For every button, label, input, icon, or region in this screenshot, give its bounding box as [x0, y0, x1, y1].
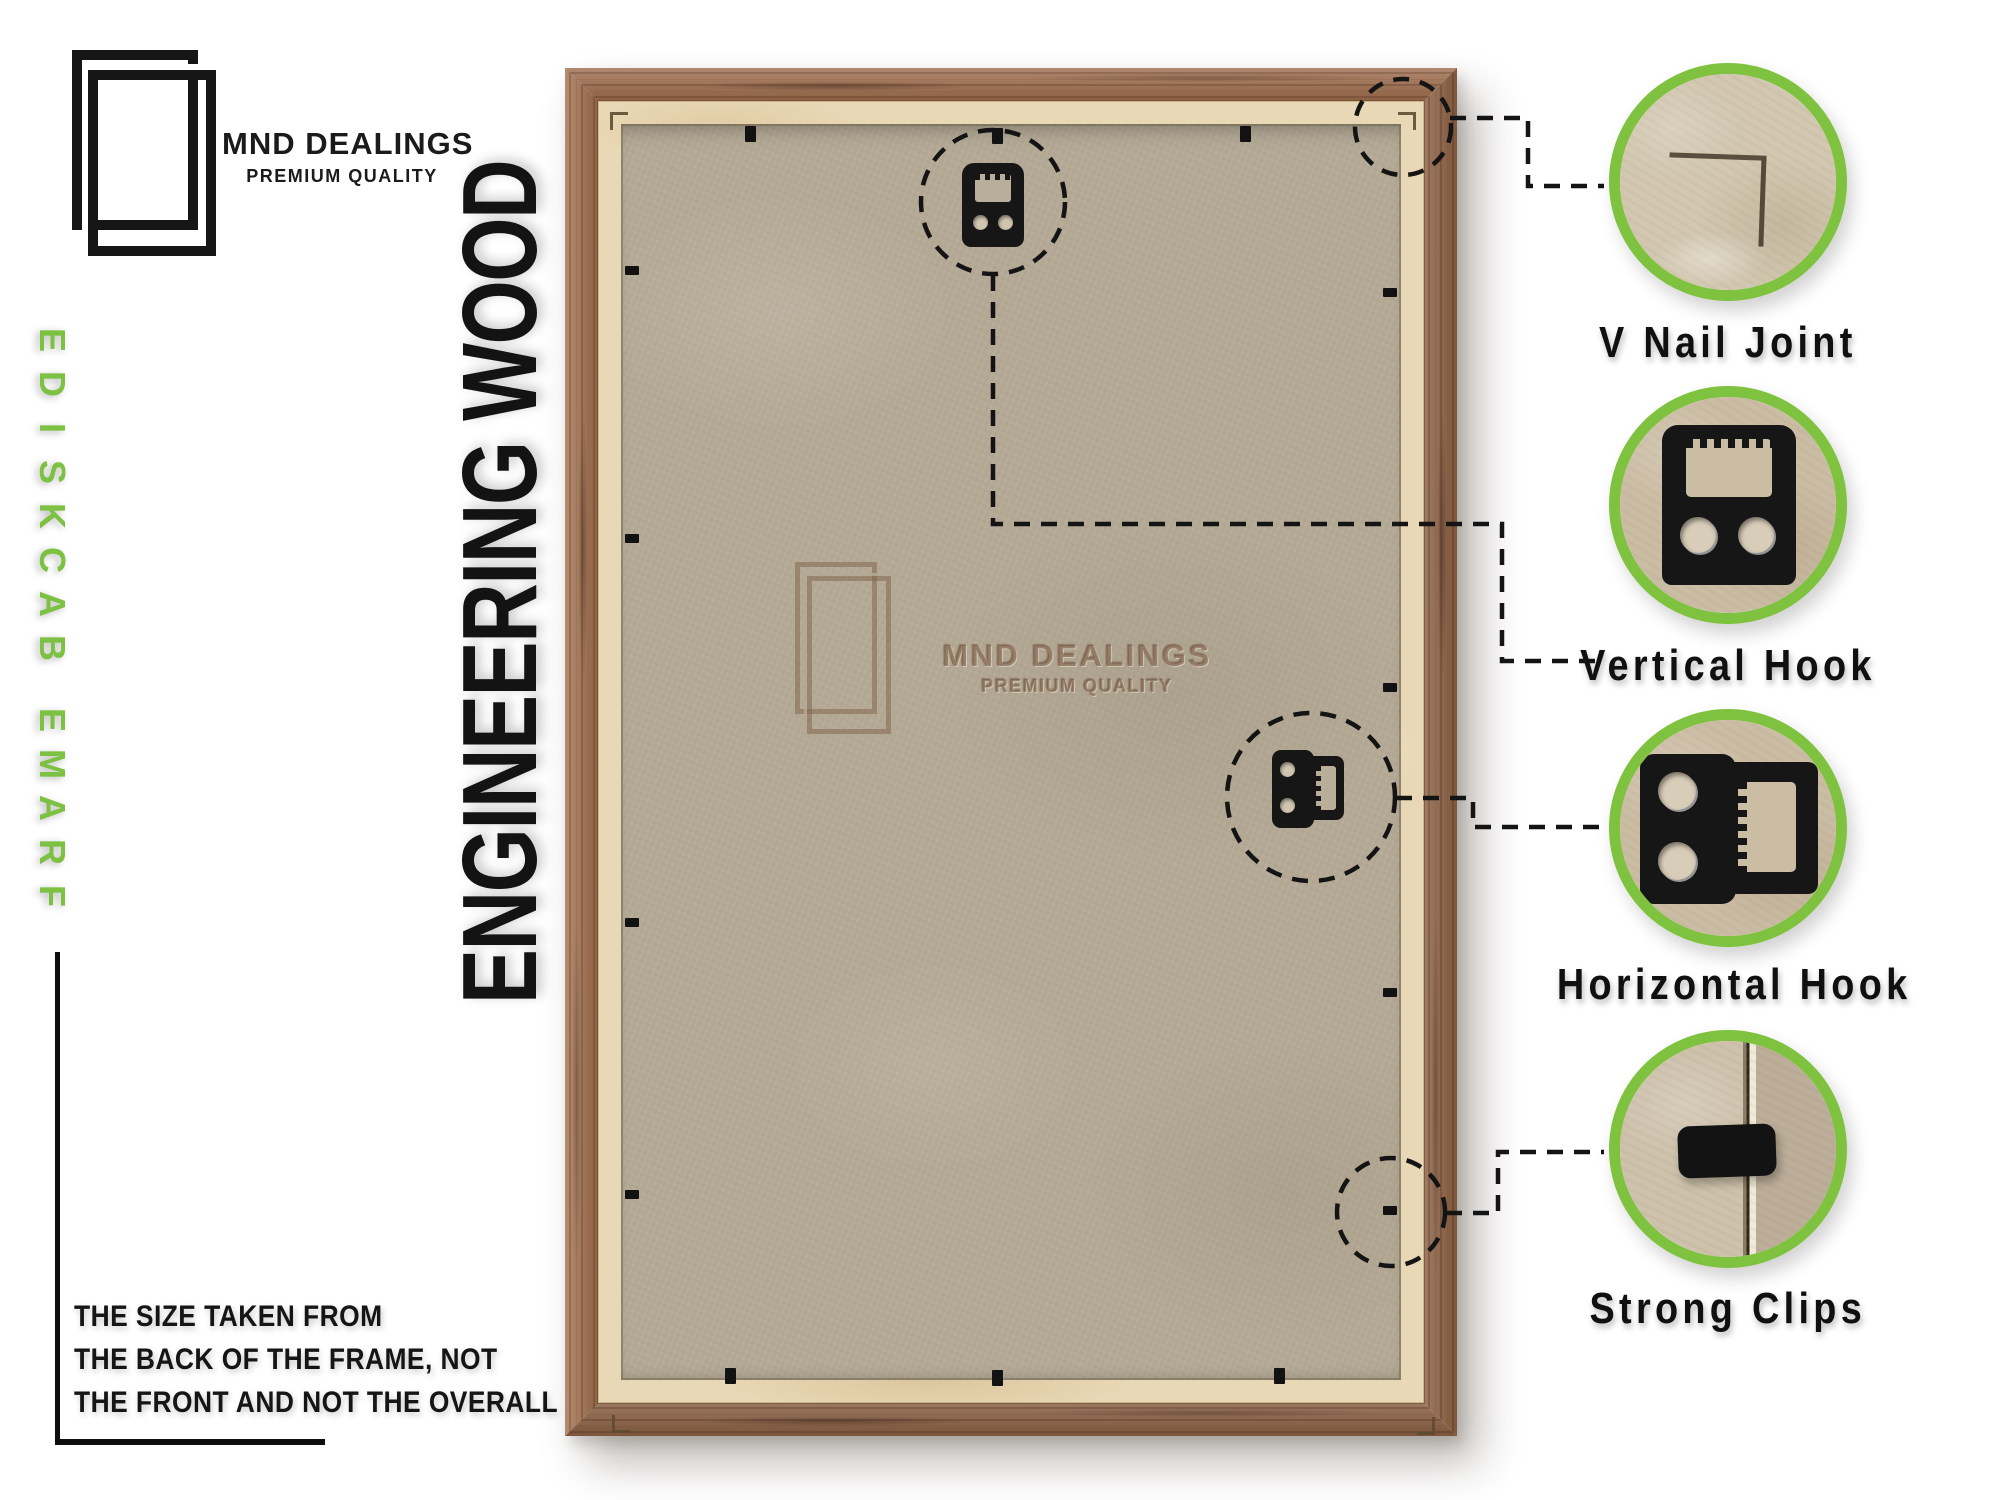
retention-clip — [1240, 126, 1251, 142]
callout-circle-horizontal-hook — [1609, 709, 1847, 947]
leader-line-strong-clips — [1446, 1152, 1604, 1213]
product-infographic: MND DEALINGS PREMIUM QUALITY EDISKCABEMA… — [0, 0, 2000, 1500]
frame-moulding-top — [565, 68, 1457, 101]
retention-clip — [1383, 683, 1397, 692]
size-note-line-1: THE SIZE TAKEN FROM — [74, 1300, 383, 1334]
frame-moulding-left — [565, 68, 598, 1436]
watermark-name: MND DEALINGS — [932, 638, 1222, 674]
retention-clip — [745, 126, 756, 142]
frame-moulding-right — [1424, 68, 1457, 1436]
retention-clip — [1383, 1206, 1397, 1215]
v-nail-corner-mark — [610, 112, 628, 130]
retention-clip — [992, 128, 1003, 144]
watermark-frames-icon — [807, 576, 891, 734]
retention-clip — [625, 918, 639, 927]
retention-clip — [625, 534, 639, 543]
callout-circle-vertical-hook — [1609, 386, 1847, 624]
note-corner-rule-vertical — [55, 952, 60, 1442]
engineering-wood-label: ENGINEERING WOOD — [438, 210, 563, 955]
retention-clip — [725, 1368, 736, 1384]
note-corner-rule-horizontal — [55, 1439, 325, 1445]
leader-line-v-nail — [1450, 118, 1604, 186]
watermark-tagline: PREMIUM QUALITY — [932, 676, 1222, 697]
retention-clip — [1383, 988, 1397, 997]
callout-circle-strong-clips — [1609, 1030, 1847, 1268]
embossed-watermark: MND DEALINGS PREMIUM QUALITY — [790, 560, 1240, 770]
callout-label-strong-clips: Strong Clips — [1528, 1284, 1928, 1334]
callout-label-v-nail-joint: V Nail Joint — [1528, 318, 1928, 368]
v-nail-corner-mark — [612, 1415, 630, 1433]
frame-outline-front-icon — [88, 70, 216, 256]
v-nail-joint-photo — [1620, 74, 1836, 290]
v-nail-corner-mark — [1398, 112, 1416, 130]
brand-tagline: PREMIUM QUALITY — [222, 166, 462, 187]
horizontal-hook-photo — [1620, 720, 1836, 936]
retention-clip — [625, 1190, 639, 1199]
horizontal-hook-hardware — [1272, 750, 1344, 828]
retention-clip — [1383, 288, 1397, 297]
size-note-line-3: THE FRONT AND NOT THE OVERALL SIZE. — [74, 1386, 634, 1420]
brand-name: MND DEALINGS — [222, 126, 462, 162]
size-note-line-2: THE BACK OF THE FRAME, NOT — [74, 1343, 498, 1377]
retention-clip — [1274, 1368, 1285, 1384]
callout-label-vertical-hook: Vertical Hook — [1528, 641, 1928, 691]
callout-label-horizontal-hook: Horizontal Hook — [1528, 960, 1928, 1010]
callout-circle-v-nail-joint — [1609, 63, 1847, 301]
frame-moulding-bottom — [565, 1403, 1457, 1436]
frame-backside-vertical-label: EDISKCABEMARF — [24, 318, 80, 918]
retention-clip — [992, 1370, 1003, 1386]
vertical-hook-hardware — [962, 163, 1024, 247]
retention-clip — [625, 266, 639, 275]
strong-clip-photo — [1620, 1041, 1836, 1257]
v-nail-corner-mark — [1417, 1417, 1435, 1435]
vertical-hook-photo — [1620, 397, 1836, 613]
